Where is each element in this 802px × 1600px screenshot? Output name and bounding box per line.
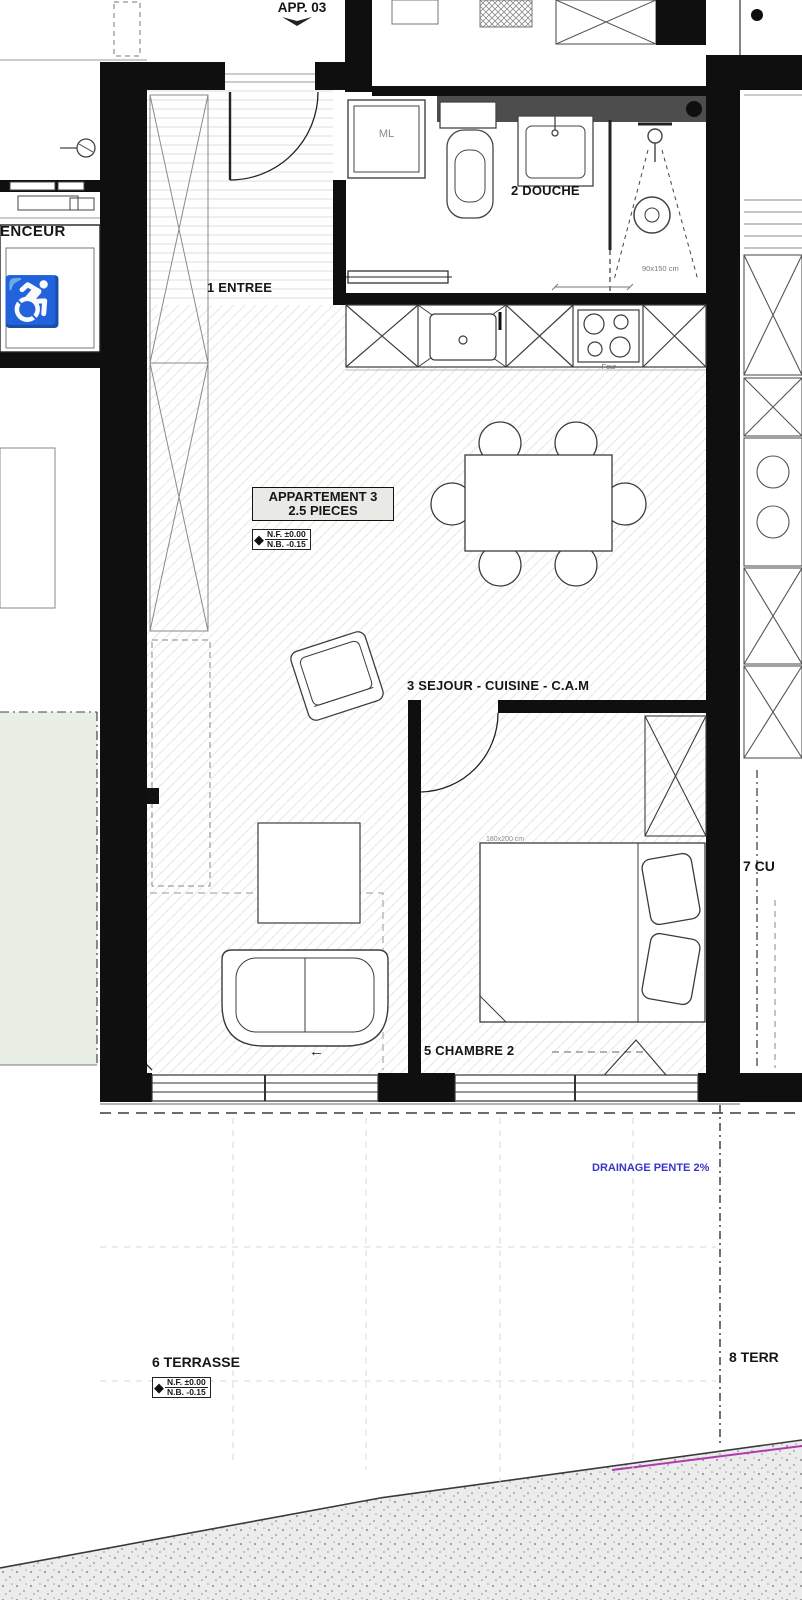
kitchen-sink bbox=[430, 312, 500, 360]
floorplan-page: APP. 03 ENCEUR ♿ 1 ENTREE 2 DOUCHE 3 SEJ… bbox=[0, 0, 802, 1600]
bed bbox=[480, 843, 705, 1022]
gravel-slope bbox=[0, 1440, 802, 1600]
entry-direction-arrow-icon: ← bbox=[309, 1044, 324, 1060]
room-label-sejour: 3 SEJOUR - CUISINE - C.A.M bbox=[407, 679, 589, 693]
bed-dimension: 160x200 cm bbox=[486, 836, 524, 843]
terrace bbox=[100, 1104, 802, 1482]
floorplan-drawing bbox=[0, 0, 802, 1600]
room-label-cuisine-neighbor: 7 CU bbox=[743, 859, 775, 874]
bathroom-sliding-door bbox=[346, 271, 452, 283]
room-label-entree: 1 ENTREE bbox=[207, 281, 272, 295]
room-label-terrasse-neighbor: 8 TERR bbox=[729, 1350, 779, 1365]
app-direction-arrow-icon bbox=[282, 17, 312, 26]
level-marker-icon: ◆ bbox=[154, 1381, 164, 1394]
bedroom-window bbox=[455, 1075, 698, 1101]
oven-label: Four bbox=[578, 364, 640, 371]
wheelchair-icon: ♿ bbox=[2, 278, 62, 328]
washing-machine-label: ML bbox=[348, 129, 425, 141]
kitchen-counter bbox=[346, 305, 706, 370]
cooktop bbox=[578, 310, 639, 362]
dining-table bbox=[465, 455, 612, 551]
drainage-note: DRAINAGE PENTE 2% bbox=[592, 1163, 709, 1175]
bathroom-sink bbox=[518, 116, 593, 186]
living-window bbox=[152, 1075, 378, 1101]
level-marker-apartment: ◆ N.F. ±0.00 N.B. -0.15 bbox=[252, 529, 311, 550]
level-marker-terrace: ◆ N.F. ±0.00 N.B. -0.15 bbox=[152, 1377, 211, 1398]
pillow bbox=[641, 852, 702, 926]
pillow bbox=[641, 932, 702, 1006]
top-neighbors bbox=[114, 0, 763, 56]
duct-symbol bbox=[686, 101, 702, 117]
duct-symbol bbox=[751, 9, 763, 21]
neighbor-fixture bbox=[0, 448, 55, 608]
garden-strip bbox=[0, 712, 97, 1065]
rough-level: N.B. -0.15 bbox=[265, 540, 308, 549]
rough-level: N.B. -0.15 bbox=[165, 1388, 208, 1397]
room-label-chambre: 5 CHAMBRE 2 bbox=[424, 1044, 514, 1058]
apartment-name: APPARTEMENT 3 bbox=[253, 490, 393, 504]
shower-dimension: 90x150 cm bbox=[642, 265, 679, 273]
right-neighbor bbox=[744, 95, 802, 1068]
apartment-title-box: APPARTEMENT 3 2.5 PIECES bbox=[252, 487, 394, 521]
coffee-table bbox=[258, 823, 360, 923]
level-marker-icon: ◆ bbox=[254, 533, 264, 546]
apartment-rooms-count: 2.5 PIECES bbox=[253, 504, 393, 518]
room-label-douche: 2 DOUCHE bbox=[511, 184, 580, 198]
toilet bbox=[440, 102, 496, 218]
app-number-label: APP. 03 bbox=[258, 1, 346, 15]
sofa bbox=[222, 950, 388, 1046]
elevator-label: ENCEUR bbox=[0, 224, 66, 240]
room-label-terrasse: 6 TERRASSE bbox=[152, 1355, 240, 1370]
